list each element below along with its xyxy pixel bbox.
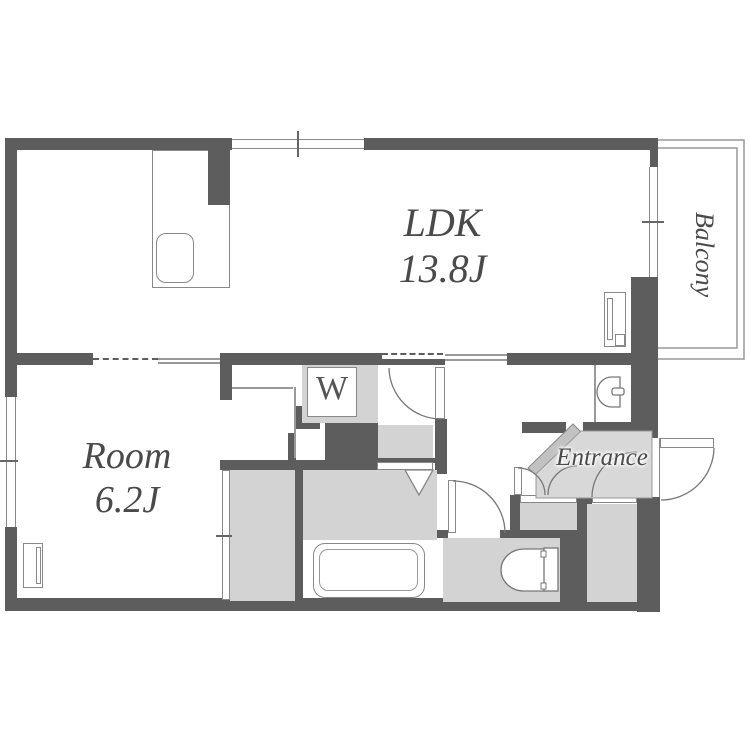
entrance-label: Entrance [543,444,661,472]
bath-door-triangle [405,470,433,495]
changing-room-door-arc [389,368,441,419]
room-size: 6.2J [42,478,212,522]
washbasin-faucet [612,388,624,395]
balcony-label: Balcony [681,170,719,340]
room-name: Room [42,434,212,478]
ldk-label: LDK 13.8J [355,200,530,292]
toilet-bowl [501,549,545,591]
ldk-name: LDK [355,200,530,246]
floor-plan: LDK 13.8J Room 6.2J Balcony Entrance W [0,0,750,750]
toilet-tank-notch-bottom [541,583,546,589]
toilet-tank-notch-top [541,551,546,557]
washing-machine-label: W [307,370,357,408]
toilet-door-arc [453,481,505,533]
plan-curves-layer [0,0,750,750]
room-label: Room 6.2J [42,434,212,522]
ldk-size: 13.8J [355,246,530,292]
front-door-arc [661,448,714,500]
